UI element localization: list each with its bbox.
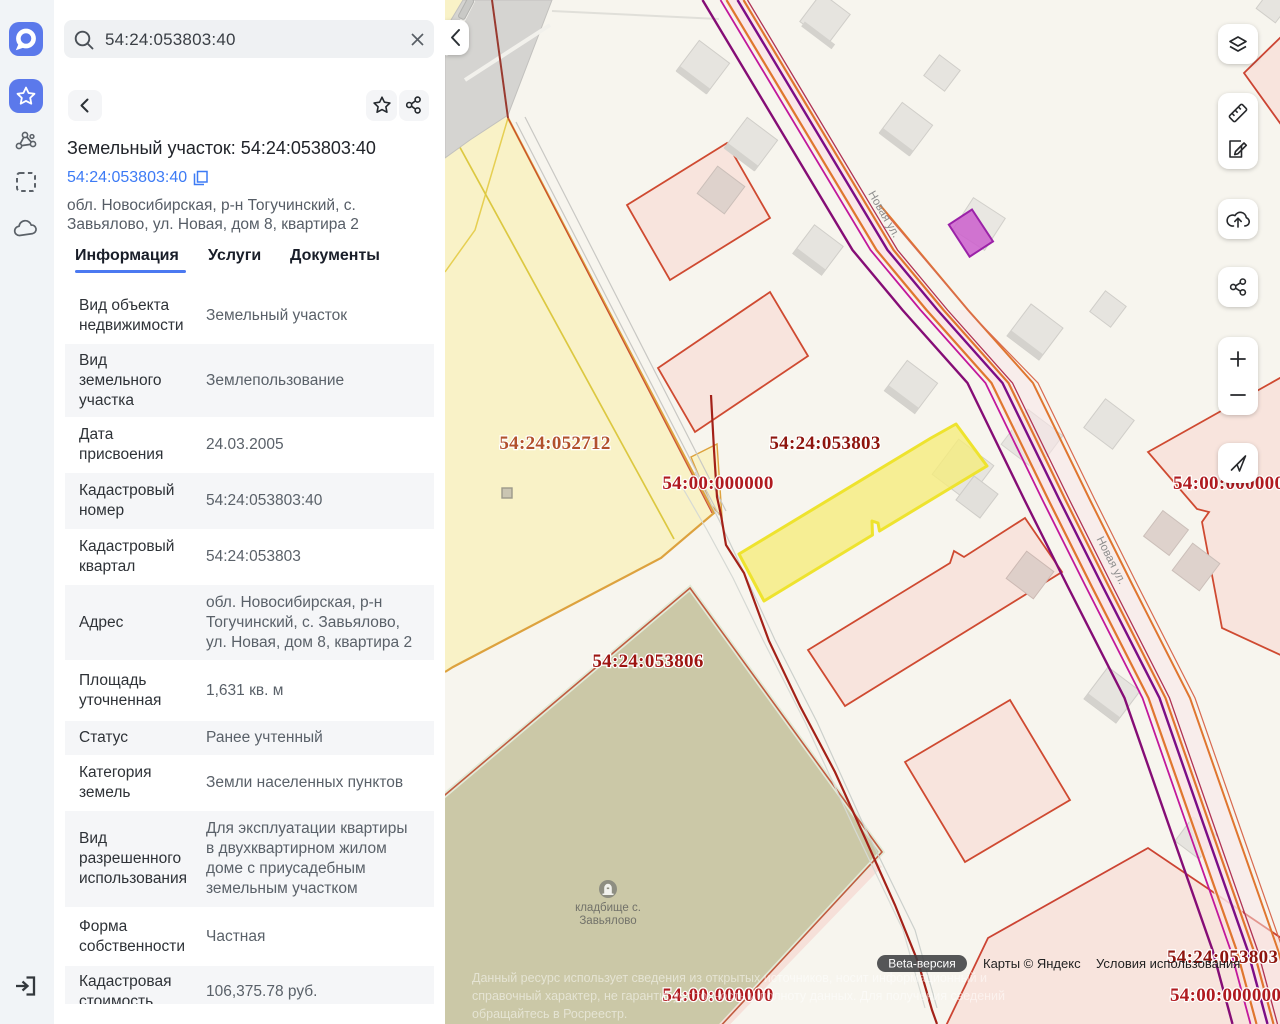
svg-text:Beta-версия: Beta-версия xyxy=(888,957,955,971)
svg-text:54:24:053803: 54:24:053803 xyxy=(769,433,880,454)
svg-text:справочный характер, не гарант: справочный характер, не гарантирует точн… xyxy=(472,989,1005,1003)
svg-text:54:00:000000: 54:00:000000 xyxy=(662,473,773,494)
svg-text:54:24:052712: 54:24:052712 xyxy=(499,433,610,454)
svg-text:54:00:000000: 54:00:000000 xyxy=(1170,985,1280,1006)
svg-text:54:24:053806: 54:24:053806 xyxy=(592,651,703,672)
svg-text:Данный ресурс использует сведе: Данный ресурс использует сведения из отк… xyxy=(472,971,987,985)
svg-text:Условия использования: Условия использования xyxy=(1096,956,1240,971)
svg-text:Карты © Яндекс: Карты © Яндекс xyxy=(983,956,1081,971)
svg-text:Завьялово: Завьялово xyxy=(579,915,636,927)
svg-text:обращайтесь в Росреестр.: обращайтесь в Росреестр. xyxy=(472,1007,627,1021)
svg-text:кладбище с.: кладбище с. xyxy=(575,902,641,914)
